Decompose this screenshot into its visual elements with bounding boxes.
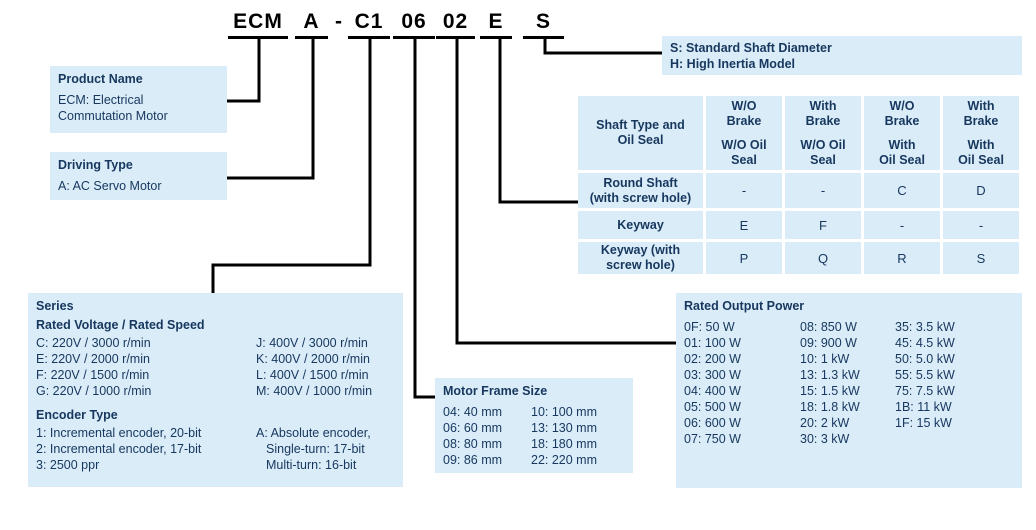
- voltage-speed-list: C: 220V / 3000 r/min E: 220V / 2000 r/mi…: [36, 335, 395, 399]
- table-column-header: W/O Brake W/O Oil Seal: [706, 96, 782, 170]
- rated-output-power-list: 0F: 50 W 01: 100 W 02: 200 W 03: 300 W 0…: [684, 319, 1014, 447]
- power-option: 20: 2 kW: [800, 415, 895, 431]
- voltage-option: K: 400V / 2000 r/min: [256, 351, 372, 367]
- power-option: 75: 7.5 kW: [895, 383, 955, 399]
- power-option: 45: 4.5 kW: [895, 335, 955, 351]
- voltage-option: J: 400V / 3000 r/min: [256, 335, 372, 351]
- frame-size-option: 22: 220 mm: [531, 452, 597, 468]
- table-cell: Q: [785, 242, 861, 274]
- frame-size-option: 08: 80 mm: [443, 436, 531, 452]
- voltage-option: F: 220V / 1500 r/min: [36, 367, 256, 383]
- encoder-type-title: Encoder Type: [36, 407, 395, 423]
- power-option: 10: 1 kW: [800, 351, 895, 367]
- power-option: 09: 900 W: [800, 335, 895, 351]
- table-cell: -: [943, 211, 1019, 239]
- power-option: 08: 850 W: [800, 319, 895, 335]
- motor-frame-size-list: 04: 40 mm 06: 60 mm 08: 80 mm 09: 86 mm …: [443, 404, 625, 468]
- voltage-option: E: 220V / 2000 r/min: [36, 351, 256, 367]
- power-option: 13: 1.3 kW: [800, 367, 895, 383]
- encoder-type-list: 1: Incremental encoder, 20-bit 2: Increm…: [36, 425, 395, 473]
- encoder-option: 1: Incremental encoder, 20-bit: [36, 425, 256, 441]
- header-brake: W/O Brake: [885, 99, 920, 129]
- header-oil-seal: With Oil Seal: [879, 138, 925, 168]
- series-title: Series: [36, 298, 395, 314]
- product-name-title: Product Name: [58, 71, 219, 87]
- encoder-option-continuation: Single-turn: 17-bit: [256, 441, 371, 457]
- frame-size-option: 13: 130 mm: [531, 420, 597, 436]
- encoder-option-continuation: Multi-turn: 16-bit: [256, 457, 371, 473]
- frame-size-option: 06: 60 mm: [443, 420, 531, 436]
- voltage-option: C: 220V / 3000 r/min: [36, 335, 256, 351]
- product-name-box: Product Name ECM: Electrical Commutation…: [50, 66, 227, 133]
- table-cell: R: [864, 242, 940, 274]
- rated-output-power-title: Rated Output Power: [684, 298, 1014, 314]
- shaft-type-oil-seal-table: Shaft Type and Oil Seal W/O Brake W/O Oi…: [578, 96, 1022, 274]
- header-oil-seal: W/O Oil Seal: [800, 138, 845, 168]
- power-option: 06: 600 W: [684, 415, 800, 431]
- table-row-label: Keyway: [578, 211, 703, 239]
- table-column-header: W/O Brake With Oil Seal: [864, 96, 940, 170]
- power-option: 18: 1.8 kW: [800, 399, 895, 415]
- header-brake: With Brake: [964, 99, 999, 129]
- table-cell: -: [706, 173, 782, 208]
- driving-type-title: Driving Type: [58, 157, 219, 173]
- table-column-header: With Brake W/O Oil Seal: [785, 96, 861, 170]
- power-option: 05: 500 W: [684, 399, 800, 415]
- frame-size-option: 10: 100 mm: [531, 404, 597, 420]
- power-option: 15: 1.5 kW: [800, 383, 895, 399]
- rated-voltage-speed-title: Rated Voltage / Rated Speed: [36, 317, 395, 333]
- driving-type-box: Driving Type A: AC Servo Motor: [50, 152, 227, 200]
- table-cell: D: [943, 173, 1019, 208]
- table-cell: C: [864, 173, 940, 208]
- power-option: 0F: 50 W: [684, 319, 800, 335]
- voltage-option: G: 220V / 1000 r/min: [36, 383, 256, 399]
- power-option: 1F: 15 kW: [895, 415, 955, 431]
- power-option: 50: 5.0 kW: [895, 351, 955, 367]
- table-cell: P: [706, 242, 782, 274]
- shaft-diameter-suffix-box: S: Standard Shaft Diameter H: High Inert…: [662, 36, 1022, 75]
- voltage-option: M: 400V / 1000 r/min: [256, 383, 372, 399]
- model-name-explanation-diagram: ECM A - C1 06 02 E S Product Name ECM: E…: [0, 0, 1036, 530]
- table-cell: S: [943, 242, 1019, 274]
- table-cell: -: [864, 211, 940, 239]
- product-name-line: Commutation Motor: [58, 108, 219, 124]
- header-oil-seal: W/O Oil Seal: [721, 138, 766, 168]
- power-option: 07: 750 W: [684, 431, 800, 447]
- table-cell: -: [785, 173, 861, 208]
- encoder-option: 2: Incremental encoder, 17-bit: [36, 441, 256, 457]
- table-corner-header: Shaft Type and Oil Seal: [578, 96, 703, 170]
- header-brake: W/O Brake: [727, 99, 762, 129]
- power-option: 30: 3 kW: [800, 431, 895, 447]
- power-option: 01: 100 W: [684, 335, 800, 351]
- series-box: Series Rated Voltage / Rated Speed C: 22…: [28, 293, 403, 487]
- encoder-option: 3: 2500 ppr: [36, 457, 256, 473]
- table-cell: F: [785, 211, 861, 239]
- frame-size-option: 09: 86 mm: [443, 452, 531, 468]
- header-brake: With Brake: [806, 99, 841, 129]
- driving-type-line: A: AC Servo Motor: [58, 178, 219, 194]
- power-option: 55: 5.5 kW: [895, 367, 955, 383]
- table-column-header: With Brake With Oil Seal: [943, 96, 1019, 170]
- header-oil-seal: With Oil Seal: [958, 138, 1004, 168]
- frame-size-option: 18: 180 mm: [531, 436, 597, 452]
- motor-frame-size-box: Motor Frame Size 04: 40 mm 06: 60 mm 08:…: [435, 378, 633, 473]
- power-option: 35: 3.5 kW: [895, 319, 955, 335]
- rated-output-power-box: Rated Output Power 0F: 50 W 01: 100 W 02…: [676, 293, 1022, 488]
- power-option: 02: 200 W: [684, 351, 800, 367]
- power-option: 1B: 11 kW: [895, 399, 955, 415]
- suffix-option: S: Standard Shaft Diameter: [670, 40, 1014, 56]
- frame-size-option: 04: 40 mm: [443, 404, 531, 420]
- power-option: 03: 300 W: [684, 367, 800, 383]
- table-row-label: Keyway (with screw hole): [578, 242, 703, 274]
- motor-frame-size-title: Motor Frame Size: [443, 383, 625, 399]
- suffix-option: H: High Inertia Model: [670, 56, 1014, 72]
- power-option: 04: 400 W: [684, 383, 800, 399]
- voltage-option: L: 400V / 1500 r/min: [256, 367, 372, 383]
- product-name-line: ECM: Electrical: [58, 92, 219, 108]
- table-cell: E: [706, 211, 782, 239]
- encoder-option: A: Absolute encoder,: [256, 425, 371, 441]
- table-row-label: Round Shaft (with screw hole): [578, 173, 703, 208]
